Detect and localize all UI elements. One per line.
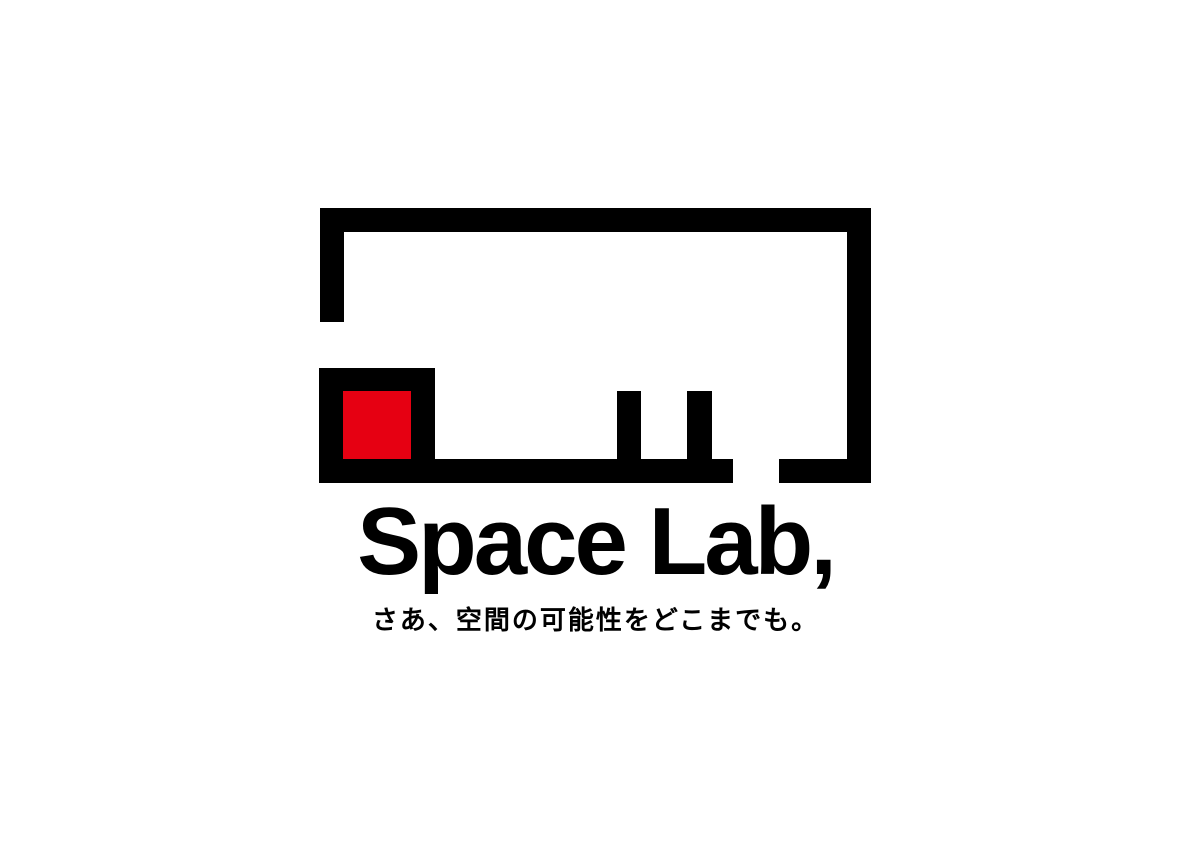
brand-wordmark: Space Lab,: [0, 494, 1191, 590]
logo-bottom-wall: [319, 459, 733, 483]
logo-right-wall: [847, 208, 871, 483]
logo-red-accent-square: [343, 391, 411, 459]
logo-table-leg-1: [617, 391, 641, 459]
page-background: Space Lab, さあ、空間の可能性をどこまでも。: [0, 0, 1191, 842]
logo-left-wall: [320, 208, 344, 322]
space-lab-logo-lockup: Space Lab, さあ、空間の可能性をどこまでも。: [0, 0, 1191, 842]
logo-table-leg-2: [687, 391, 712, 459]
logo-top-wall: [320, 208, 871, 232]
brand-tagline: さあ、空間の可能性をどこまでも。: [0, 603, 1191, 637]
logo-bottom-right-wall: [779, 459, 871, 483]
